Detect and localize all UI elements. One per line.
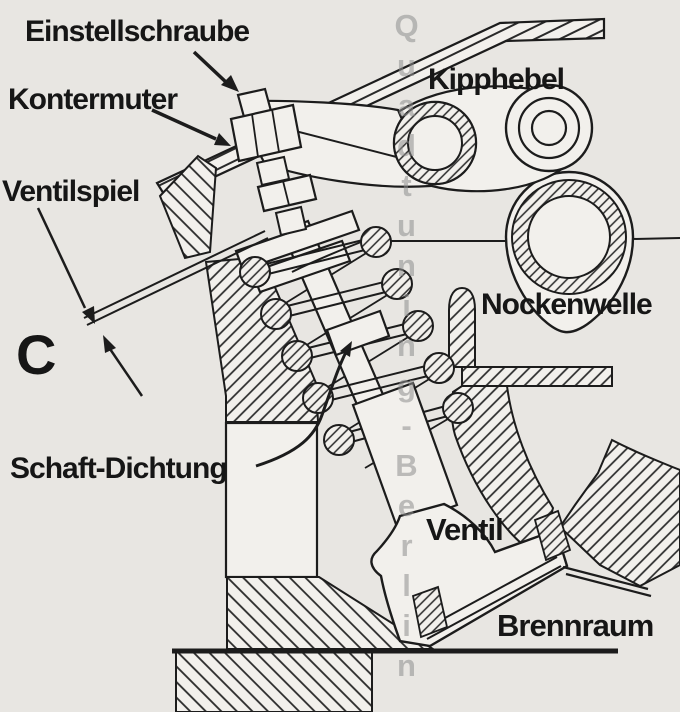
head-wall-upper-section xyxy=(160,156,216,258)
guide-boss-finger-section xyxy=(449,288,475,367)
label-kipphebel: Kipphebel xyxy=(428,63,564,96)
valve-train-diagram-page: Einstellschraube Kontermuter Ventilspiel… xyxy=(0,0,680,712)
einstellschraube-arrow xyxy=(194,52,239,92)
screw-tip xyxy=(276,207,306,235)
label-brennraum: Brennraum xyxy=(497,608,653,643)
label-schaft-dichtung: Schaft-Dichtung xyxy=(10,452,227,485)
valve-train-diagram: Einstellschraube Kontermuter Ventilspiel… xyxy=(0,0,680,712)
camshaft-axis-line-right xyxy=(633,238,680,239)
label-nockenwelle: Nockenwelle xyxy=(481,288,652,321)
label-ventilspiel: Ventilspiel xyxy=(2,175,139,208)
label-einstellschraube: Einstellschraube xyxy=(25,15,249,48)
head-casting-block xyxy=(226,423,317,577)
head-wall-bar-section xyxy=(462,367,612,386)
label-section-c: C xyxy=(16,323,55,386)
seat-wall-right-section xyxy=(560,440,680,586)
label-ventil: Ventil xyxy=(426,512,503,547)
block-section-below-chamber xyxy=(176,652,372,712)
label-kontermuter: Kontermuter xyxy=(8,83,178,116)
